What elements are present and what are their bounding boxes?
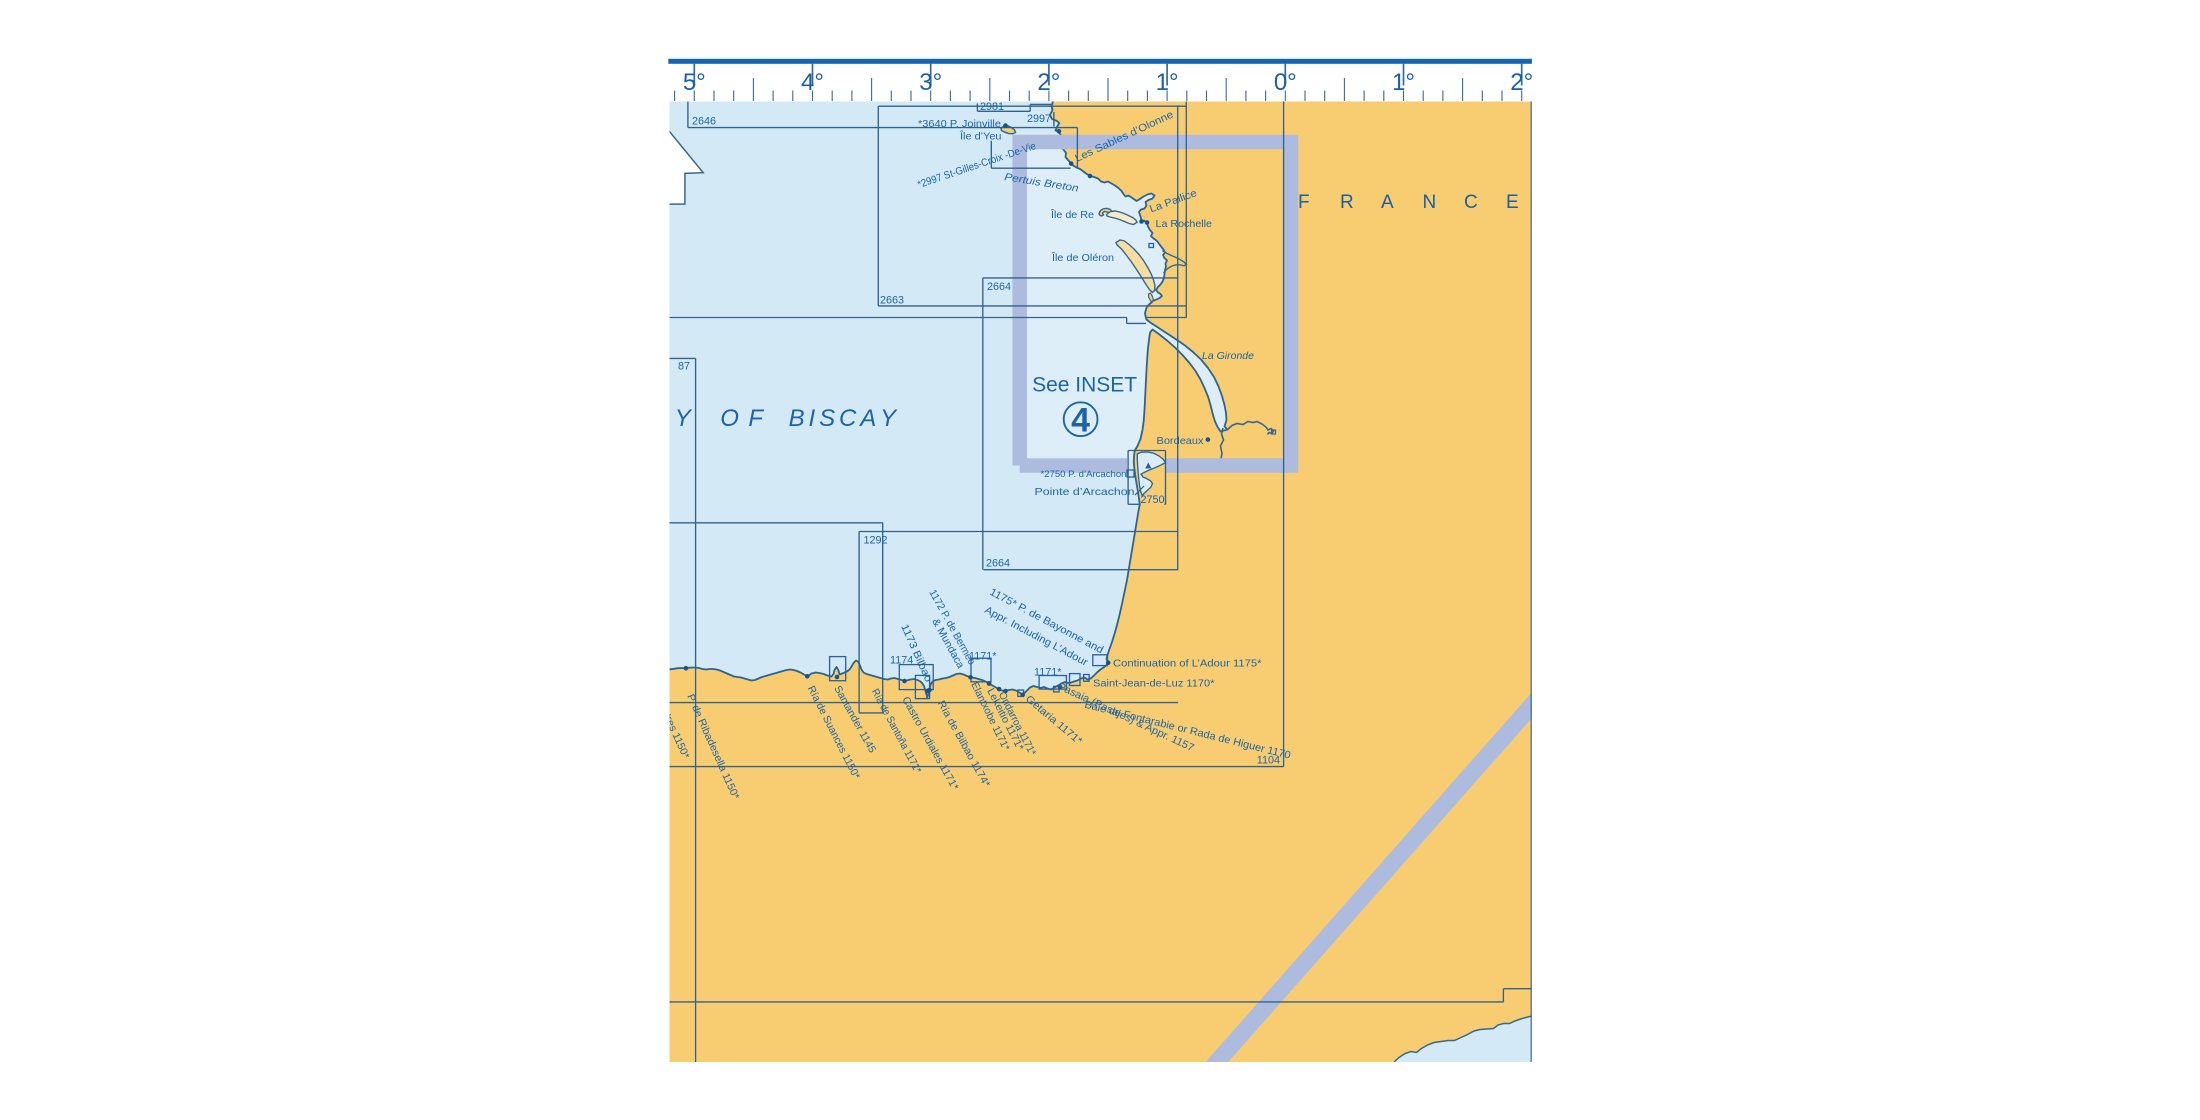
svg-text:1174: 1174 [890,655,913,667]
svg-text:*2750 P. d’Arcachon: *2750 P. d’Arcachon [1041,469,1127,480]
svg-text:4°: 4° [801,69,824,96]
svg-text:2646: 2646 [692,116,716,128]
svg-text:2997: 2997 [1027,113,1051,125]
svg-text:1171*: 1171* [1034,667,1062,679]
svg-text:2664: 2664 [987,281,1011,293]
svg-text:87: 87 [678,361,690,373]
svg-text:4: 4 [1071,402,1090,440]
svg-text:Île de Re: Île de Re [1050,208,1094,221]
svg-text:2981: 2981 [980,101,1004,113]
svg-text:Saint-Jean-de-Luz 1170*: Saint-Jean-de-Luz 1170* [1093,678,1215,690]
svg-text:5°: 5° [683,69,706,96]
svg-text:1°: 1° [1156,69,1179,96]
svg-text:2°: 2° [1037,69,1060,96]
svg-text:Île de Oléron: Île de Oléron [1051,251,1114,264]
svg-text:1292: 1292 [864,534,888,546]
svg-text:0°: 0° [1274,69,1297,96]
svg-text:Île d’Yeu: Île d’Yeu [959,130,1002,143]
svg-text:Pointe d’Arcachon: Pointe d’Arcachon [1035,486,1135,498]
svg-text:2750: 2750 [1141,494,1165,506]
svg-text:2663: 2663 [880,294,904,306]
svg-text:2664: 2664 [986,558,1010,570]
svg-text:See INSET: See INSET [1032,374,1137,397]
svg-text:Bordeaux: Bordeaux [1157,435,1205,447]
svg-text:La Gironde: La Gironde [1202,350,1254,362]
svg-text:2°: 2° [1510,69,1533,96]
svg-text:3°: 3° [919,69,942,96]
svg-text:1°: 1° [1392,69,1415,96]
svg-text:La Rochelle: La Rochelle [1156,218,1213,230]
svg-text:Continuation of L’Adour 1175*: Continuation of L’Adour 1175* [1113,658,1262,670]
svg-text:*3640 P. Joinville: *3640 P. Joinville [918,118,1001,130]
